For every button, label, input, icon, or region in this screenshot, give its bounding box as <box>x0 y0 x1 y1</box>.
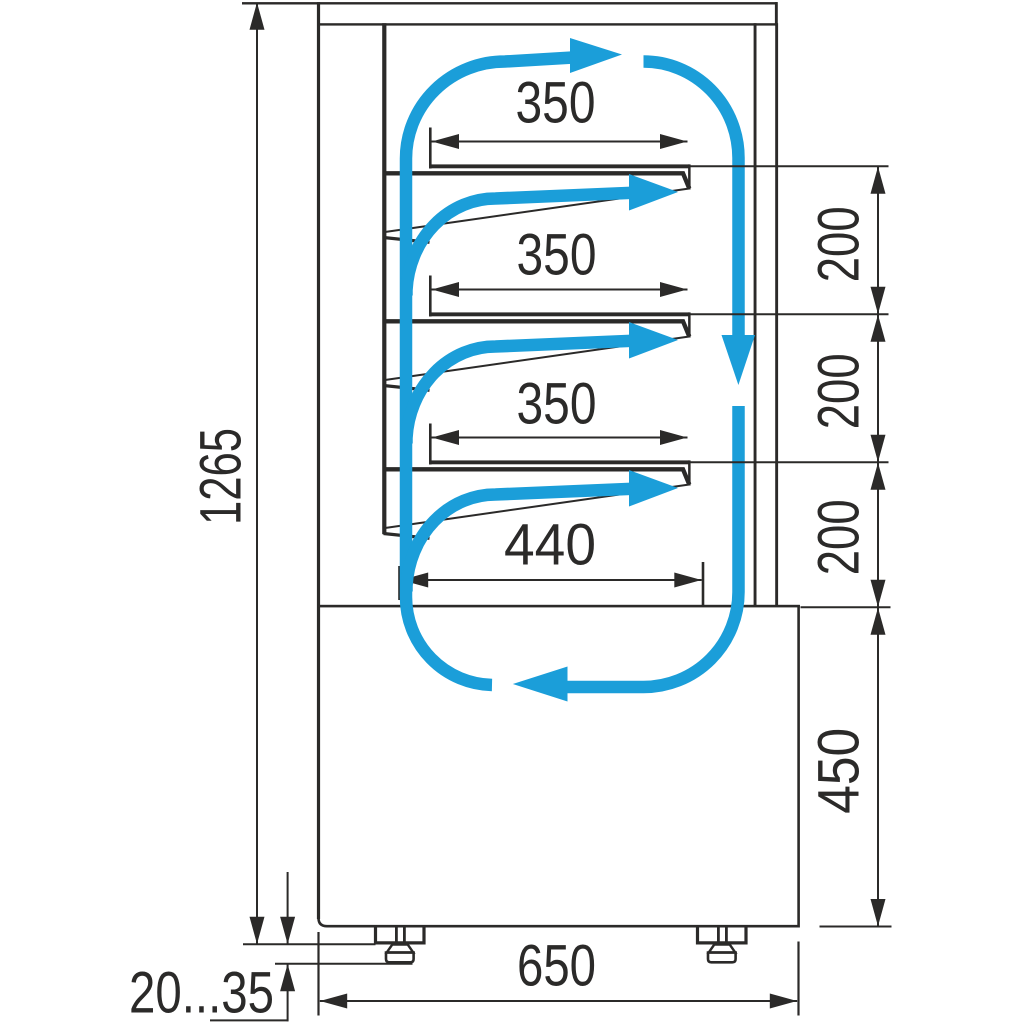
svg-text:20...35: 20...35 <box>129 960 274 1024</box>
svg-text:350: 350 <box>517 371 597 436</box>
svg-text:440: 440 <box>504 512 596 577</box>
svg-text:350: 350 <box>516 70 596 135</box>
svg-text:200: 200 <box>807 206 872 282</box>
svg-text:1265: 1265 <box>189 428 254 525</box>
svg-text:350: 350 <box>517 222 597 287</box>
svg-text:200: 200 <box>807 353 872 429</box>
svg-text:650: 650 <box>517 933 596 998</box>
svg-text:450: 450 <box>807 728 872 814</box>
svg-text:200: 200 <box>807 499 872 575</box>
